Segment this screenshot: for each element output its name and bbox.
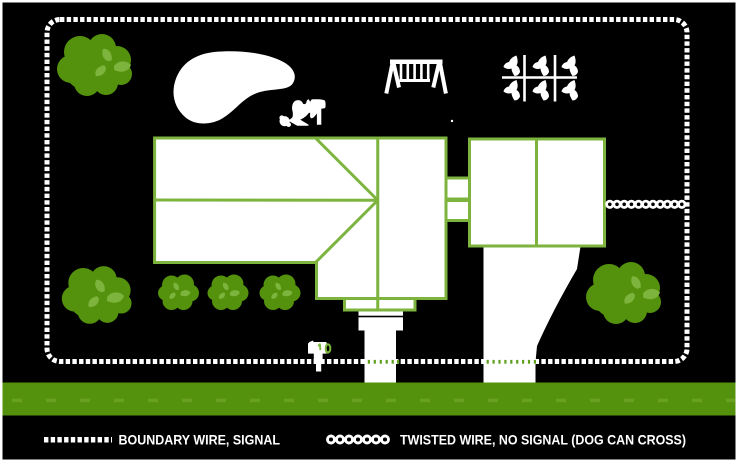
svg-text:TWISTED WIRE, NO SIGNAL (DOG C: TWISTED WIRE, NO SIGNAL (DOG CAN CROSS) [400, 432, 686, 448]
svg-text:BOUNDARY WIRE, SIGNAL: BOUNDARY WIRE, SIGNAL [119, 432, 281, 448]
